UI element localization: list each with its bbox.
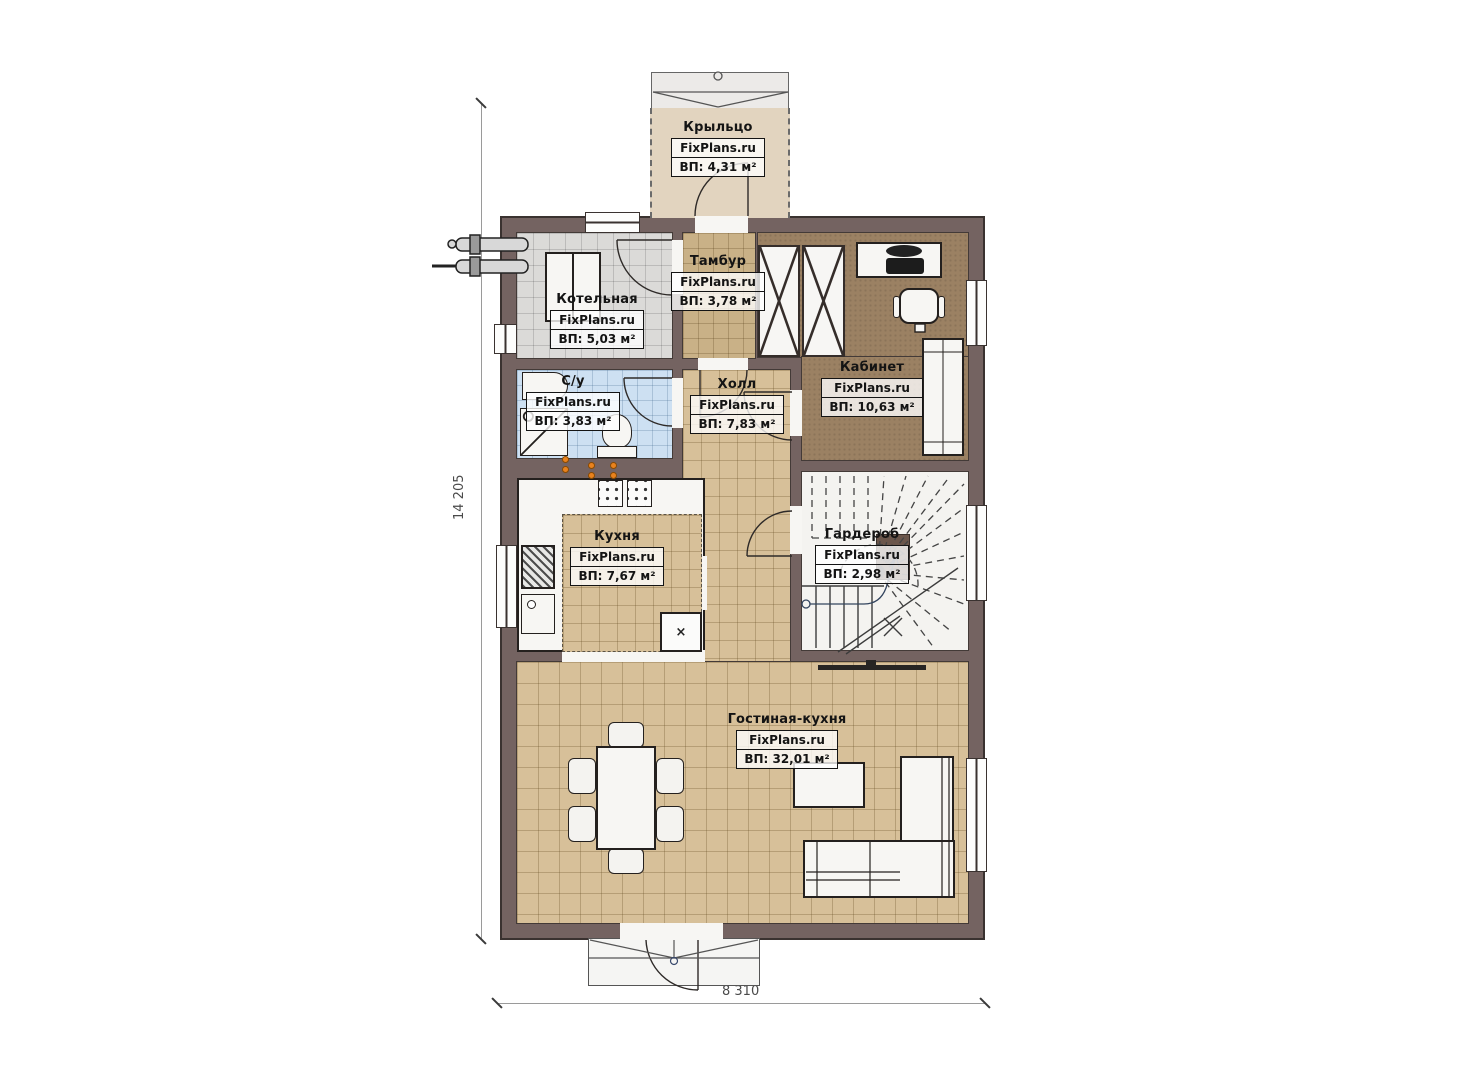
tv-bracket bbox=[866, 660, 876, 666]
dimension-label-left: 14 205 bbox=[452, 475, 467, 521]
kitchen-faucet bbox=[527, 600, 536, 609]
sofa-main bbox=[803, 840, 955, 898]
window-living-right bbox=[966, 758, 987, 872]
dining-chair bbox=[656, 758, 684, 794]
window-boiler-left bbox=[494, 324, 517, 354]
porch-canopy bbox=[651, 72, 789, 110]
dining-chair bbox=[608, 722, 644, 748]
closet-right bbox=[802, 245, 845, 357]
boiler-unit-divider bbox=[572, 252, 574, 322]
door-gap-bathroom bbox=[672, 378, 683, 428]
fridge bbox=[521, 545, 555, 589]
office-desk bbox=[856, 242, 942, 278]
window-kitchen-left bbox=[496, 545, 517, 628]
sofa-chaise bbox=[900, 756, 954, 844]
valve-icon bbox=[610, 462, 617, 469]
dining-chair bbox=[568, 806, 596, 842]
door-gap-office bbox=[790, 390, 802, 436]
valve-icon bbox=[562, 456, 569, 463]
room-tambur bbox=[683, 233, 755, 358]
dining-chair bbox=[656, 806, 684, 842]
toilet-tank bbox=[597, 446, 637, 458]
door-gap-tambur-hall bbox=[698, 358, 748, 370]
dining-table bbox=[596, 746, 656, 850]
entrance-door-gap bbox=[695, 216, 748, 233]
coffee-table bbox=[793, 762, 865, 808]
window-office-right bbox=[966, 280, 987, 346]
office-chair-arm bbox=[938, 296, 945, 318]
dimension-line-bottom bbox=[497, 1003, 985, 1004]
office-sofa bbox=[922, 338, 964, 456]
valve-icon bbox=[562, 466, 569, 473]
kitchen-sink bbox=[521, 594, 555, 634]
office-chair bbox=[899, 288, 939, 324]
cross-symbol: × bbox=[676, 625, 687, 640]
room-porch bbox=[650, 108, 790, 218]
valve-icon bbox=[588, 472, 595, 479]
bathroom-sink bbox=[522, 372, 568, 400]
office-chair-arm bbox=[893, 296, 900, 318]
toilet-bowl bbox=[602, 414, 632, 448]
dining-chair bbox=[568, 758, 596, 794]
dimension-line-left bbox=[481, 103, 482, 940]
kitchen-corner-cabinet: × bbox=[660, 612, 702, 652]
door-gap-boiler bbox=[672, 240, 683, 294]
dimension-label-bottom: 8 310 bbox=[722, 984, 759, 999]
closet-left bbox=[758, 245, 800, 357]
floor-plan-page: 14 205 8 310 bbox=[0, 0, 1473, 1080]
dining-chair bbox=[608, 848, 644, 874]
window-stairs-right bbox=[966, 505, 987, 601]
window-boiler-top bbox=[585, 212, 640, 233]
terrace-steps bbox=[588, 938, 760, 986]
stove-burners-right bbox=[627, 480, 652, 507]
stove-burners-left bbox=[598, 480, 623, 507]
valve-icon bbox=[588, 462, 595, 469]
door-gap-wardrobe bbox=[790, 506, 802, 554]
washing-machine bbox=[520, 408, 568, 456]
stair-newel-block bbox=[876, 534, 910, 580]
valve-icon bbox=[610, 472, 617, 479]
terrace-door-gap bbox=[620, 923, 723, 940]
